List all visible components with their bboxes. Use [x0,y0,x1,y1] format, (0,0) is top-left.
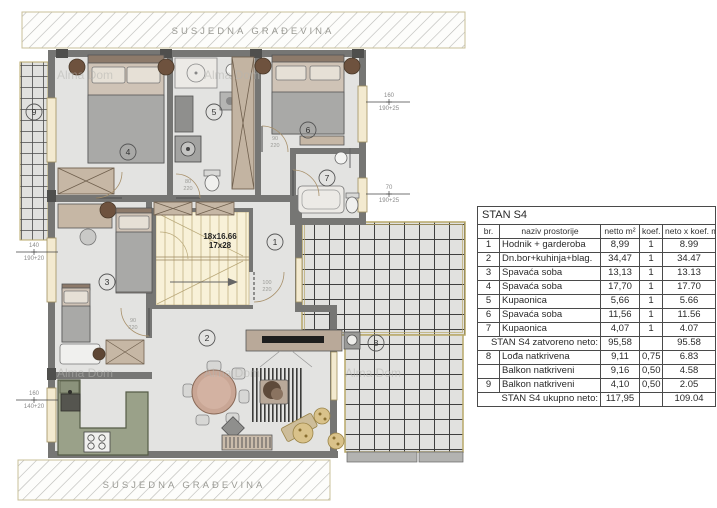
terrace [302,222,465,335]
floor-plan-page: SUSJEDNA GRAĐEVINA SUSJEDNA GRAĐEVINA [0,0,717,508]
table-row: 9 Balkon natkriveni 4,10 0,50 2.05 [478,379,716,393]
area-table: STAN S4 br. naziv prostorije netto m² ko… [477,206,715,407]
cell-name: Balkon natkriveni [500,379,601,393]
neighbor-bottom-label: SUSJEDNA GRAĐEVINA [103,480,266,491]
cell-netto: 8,99 [601,239,640,253]
col-header-netto: netto m² [601,225,640,239]
cell-name: Lođa natkrivena [500,351,601,365]
cell-total: 17.70 [663,281,716,295]
cell-br: 2 [478,253,500,267]
table-subtotal-row: STAN S4 zatvoreno neto: 95,58 95.58 [478,337,716,351]
table-row: 4 Spavaća soba 17,70 1 17.70 [478,281,716,295]
door-dim-main: 80 [185,179,191,185]
svg-text:9: 9 [32,107,37,117]
cell-netto: 4,07 [601,323,640,337]
cell-br: 3 [478,267,500,281]
window-dim-main: 140 [29,243,40,249]
cell-total: 13.13 [663,267,716,281]
staircase: 18x16.66 17x28 [156,212,249,305]
stairs-label-line1: 18x16.66 [203,232,237,241]
door-dim-main: 100 [262,280,271,286]
svg-text:6: 6 [306,125,311,135]
door-dim-main: 90 [272,136,278,142]
tv-screen [262,336,324,343]
cell-koef: 1 [640,281,663,295]
cell-br: 4 [478,281,500,295]
watermark: Alma Dom [204,68,260,82]
cell-netto: 9,11 [601,351,640,365]
total-total: 109.04 [663,393,716,407]
table-header-row: br. naziv prostorije netto m² koef. neto… [478,225,716,239]
col-header-br: br. [478,225,500,239]
kitchen-sink [61,394,80,411]
door-dim-main: 90 [130,318,136,324]
svg-text:7: 7 [325,173,330,183]
table-row: 7 Kupaonica 4,07 1 4.07 [478,323,716,337]
cell-name: Balkon natkriveni [500,365,601,379]
col-header-name: naziv prostorije [500,225,601,239]
cell-br: 1 [478,239,500,253]
cell-koef: 0,50 [640,379,663,393]
wardrobe-room4 [58,168,114,194]
total-label: STAN S4 ukupno neto: [478,393,601,407]
subtotal-total: 95.58 [663,337,716,351]
svg-text:8: 8 [374,338,379,348]
cell-name: Spavaća soba [500,281,601,295]
watermark: Alma Dom [57,68,113,82]
svg-text:5: 5 [212,107,217,117]
cell-total: 4.58 [663,365,716,379]
cell-name: Spavaća soba [500,267,601,281]
cell-name: Spavaća soba [500,309,601,323]
cell-br: 8 [478,351,500,365]
table-row: 8 Lođa natkrivena 9,11 0,75 6.83 [478,351,716,365]
cell-netto: 17,70 [601,281,640,295]
svg-text:3: 3 [105,277,110,287]
table-total-row: STAN S4 ukupno neto: 117,95 109.04 [478,393,716,407]
table-row: 6 Spavaća soba 11,56 1 11.56 [478,309,716,323]
cell-koef: 0,50 [640,365,663,379]
table-title: STAN S4 [478,207,716,225]
table-row: 2 Dn.bor+kuhinja+blag. 34,47 1 34.47 [478,253,716,267]
loggia [345,335,463,462]
subtotal-netto: 95,58 [601,337,640,351]
cell-netto: 11,56 [601,309,640,323]
cell-br [478,365,500,379]
table-row: Balkon natkriveni 9,16 0,50 4.58 [478,365,716,379]
cell-netto: 5,66 [601,295,640,309]
window-dim-sub: 190+25 [379,106,400,112]
cell-netto: 9,16 [601,365,640,379]
cell-koef: 1 [640,239,663,253]
window-dim-sub: 190+20 [24,256,45,262]
cell-koef: 1 [640,309,663,323]
cell-netto: 13,13 [601,267,640,281]
door-dim-sub: 220 [270,143,279,149]
cell-br: 6 [478,309,500,323]
cell-koef: 1 [640,323,663,337]
table-row: 3 Spavaća soba 13,13 1 13.13 [478,267,716,281]
window-dim-main: 160 [384,93,395,99]
watermark: Alma Dom [345,366,401,380]
cell-netto: 4,10 [601,379,640,393]
svg-text:2: 2 [205,333,210,343]
kitchen-hob [84,432,110,452]
fireplace [222,435,272,450]
door-dim-sub: 220 [262,287,271,293]
cell-total: 8.99 [663,239,716,253]
cell-koef: 1 [640,253,663,267]
watermark: Alma Dom [204,366,260,380]
cell-total: 6.83 [663,351,716,365]
cell-name: Kupaonica [500,295,601,309]
cell-name: Kupaonica [500,323,601,337]
cell-total: 2.05 [663,379,716,393]
door-dim-sub: 220 [183,186,192,192]
window-dim-sub: 190+25 [379,198,400,204]
svg-text:1: 1 [273,237,278,247]
cell-koef: 0,75 [640,351,663,365]
table-row: 1 Hodnik + garderoba 8,99 1 8.99 [478,239,716,253]
table-row: 5 Kupaonica 5,66 1 5.66 [478,295,716,309]
stairs-label-line2: 17x28 [209,241,232,250]
cell-name: Dn.bor+kuhinja+blag. [500,253,601,267]
subtotal-label: STAN S4 zatvoreno neto: [478,337,601,351]
cell-koef: 1 [640,295,663,309]
total-koef-empty [640,393,663,407]
balcony-left [20,62,48,240]
svg-text:4: 4 [126,147,131,157]
neighbor-building-bottom: SUSJEDNA GRAĐEVINA [18,460,330,500]
cell-name: Hodnik + garderoba [500,239,601,253]
cell-koef: 1 [640,267,663,281]
window-dim-main: 70 [386,185,393,191]
cell-netto: 34,47 [601,253,640,267]
cell-total: 11.56 [663,309,716,323]
total-netto: 117,95 [601,393,640,407]
cell-total: 34.47 [663,253,716,267]
cell-br: 5 [478,295,500,309]
door-dim-sub: 220 [128,325,137,331]
window-dim-main: 160 [29,391,40,397]
subtotal-koef-empty [640,337,663,351]
window-dim-sub: 140+20 [24,404,45,410]
neighbor-building-top: SUSJEDNA GRAĐEVINA [22,12,465,48]
watermark: Alma Dom [57,366,113,380]
col-header-total: neto x koef. m² [663,225,716,239]
cell-br: 9 [478,379,500,393]
floor-plan: SUSJEDNA GRAĐEVINA SUSJEDNA GRAĐEVINA [0,0,475,508]
cell-total: 5.66 [663,295,716,309]
cell-total: 4.07 [663,323,716,337]
cell-br: 7 [478,323,500,337]
col-header-koef: koef. [640,225,663,239]
neighbor-top-label: SUSJEDNA GRAĐEVINA [172,26,335,37]
